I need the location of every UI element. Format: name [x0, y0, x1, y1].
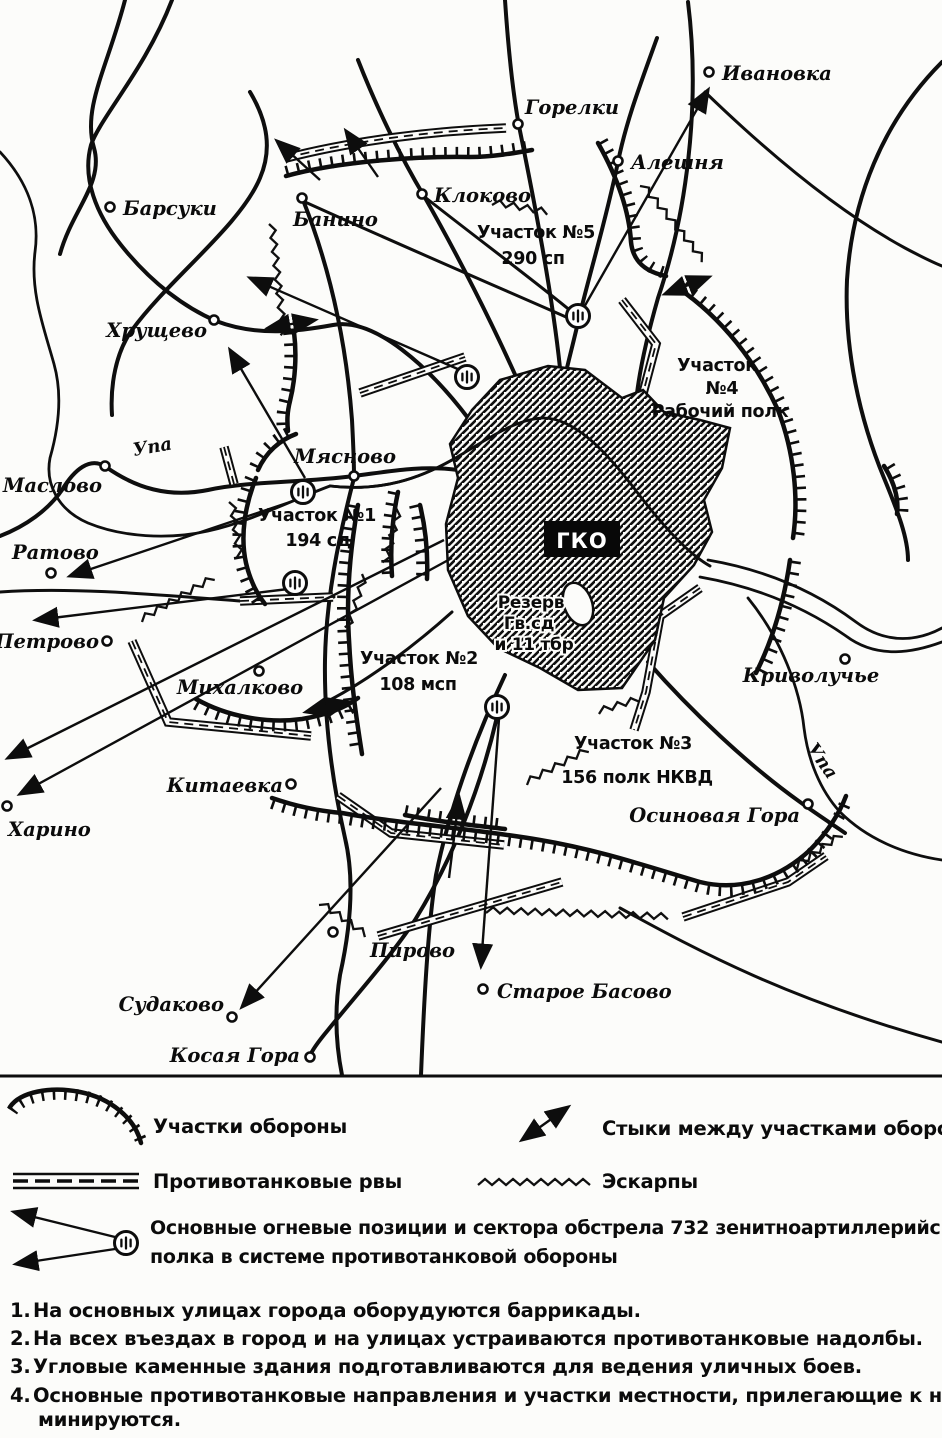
place-label-aleshnya: Алешня	[629, 151, 724, 174]
place-label-barsuki: Барсуки	[122, 197, 217, 220]
settlement-dot	[614, 157, 623, 166]
note3-text: Угловые каменные здания подготавливаются…	[33, 1355, 862, 1378]
note1-number: 1.	[10, 1299, 31, 1322]
sector4-label-line2: №4	[706, 379, 739, 399]
place-label-gorelki: Горелки	[524, 96, 619, 119]
place-label-khrushchevo: Хрущево	[104, 319, 207, 342]
place-label-mikhalkovo: Михалково	[176, 676, 303, 699]
note4-number: 4.	[10, 1384, 31, 1407]
place-label-sudakovo: Судаково	[119, 993, 224, 1016]
note3-number: 3.	[10, 1355, 31, 1378]
sector2-label-line1: Участок №2	[360, 649, 478, 669]
reserve-label-line3: и 11 тбр	[495, 635, 574, 655]
place-label-maslovo: Маслово	[2, 474, 102, 497]
legend-aa-label-line2: полка в системе противотанковой обороны	[150, 1246, 618, 1268]
sector5-label-line1: Участок №5	[477, 223, 595, 243]
antitank-ditch-symbol	[13, 1174, 139, 1188]
sector3-label-line1: Участок №3	[574, 734, 692, 754]
defense-map-svg: ГКО Резерв Гв.сд и 11 тбр	[0, 0, 942, 1438]
place-label-kosaya-gora: Косая Гора	[169, 1044, 300, 1067]
settlement-dot	[101, 462, 110, 471]
settlement-dot	[228, 1013, 237, 1022]
note1-text: На основных улицах города оборудуются ба…	[33, 1299, 641, 1322]
note4-text-line2: минируются.	[38, 1408, 181, 1431]
legend-escarpments-label: Эскарпы	[602, 1170, 698, 1193]
place-label-osinovaya-gora: Осиновая Гора	[629, 804, 800, 827]
settlement-dot	[255, 667, 264, 676]
defense-sector-symbol	[10, 1090, 143, 1147]
place-label-petrovo: Петрово	[0, 630, 99, 653]
notes: 1. На основных улицах города оборудуются…	[10, 1299, 942, 1431]
sector3-label-line2: 156 полк НКВД	[561, 768, 713, 788]
legend: Участки обороны Стыки между участками об…	[0, 1076, 942, 1268]
aa-position-icon	[567, 305, 590, 328]
sector4-label-line1: Участок	[677, 356, 757, 376]
settlement-dot	[705, 68, 714, 77]
sector4-label-line3: Рабочий полк	[652, 402, 789, 422]
settlement-dot	[287, 780, 296, 789]
place-label-staroe-basovo: Старое Басово	[497, 980, 672, 1003]
aa-position-icon	[486, 696, 509, 719]
place-label-banino: Банино	[292, 208, 378, 231]
place-label-kharino: Харино	[6, 818, 91, 841]
sector1-label-line2: 194 сд	[285, 531, 350, 551]
sector2-label-line2: 108 мсп	[379, 675, 456, 695]
reserve-label-line1: Резерв	[498, 593, 565, 613]
legend-aa-label-line1: Основные огневые позиции и сектора обстр…	[150, 1217, 942, 1239]
tula-defense-map-page: ГКО Резерв Гв.сд и 11 тбр	[0, 0, 942, 1438]
aa-position-legend-symbol	[14, 1212, 138, 1264]
reserve-label-line2: Гв.сд	[504, 614, 554, 634]
junction-arrow-symbol	[522, 1107, 568, 1140]
legend-junctions-label: Стыки между участками обороны	[602, 1117, 942, 1140]
settlement-dot	[418, 190, 427, 199]
place-label-krivoluchye: Криволучье	[742, 664, 880, 687]
place-label-klokovo: Клоково	[433, 184, 531, 207]
aa-position-icon	[456, 366, 479, 389]
place-label-ivanovka: Ивановка	[721, 62, 832, 85]
gko-label: ГКО	[556, 529, 607, 553]
settlement-dot	[306, 1053, 315, 1062]
aa-position-icon	[292, 481, 315, 504]
settlement-dot	[329, 928, 338, 937]
settlement-dot	[106, 203, 115, 212]
settlement-dot	[298, 194, 307, 203]
settlement-dot	[804, 800, 813, 809]
settlement-dot	[841, 655, 850, 664]
settlement-dot	[514, 120, 523, 129]
settlement-dot	[479, 985, 488, 994]
sector5-label-line2: 290 сп	[501, 249, 564, 269]
settlement-dot	[210, 316, 219, 325]
settlement-dot	[350, 472, 359, 481]
settlement-dot	[103, 637, 112, 646]
river-label-upa-west: Упа	[131, 433, 173, 461]
settlement-dot	[3, 802, 12, 811]
legend-ditches-label: Противотанковые рвы	[153, 1170, 402, 1193]
aa-position-icon	[284, 572, 307, 595]
settlement-dot	[47, 569, 56, 578]
legend-defense-sectors-label: Участки обороны	[153, 1115, 347, 1138]
escarpment-symbol	[478, 1179, 590, 1185]
place-label-myasnovo: Мясново	[293, 445, 396, 468]
place-label-kitaevka: Китаевка	[166, 774, 283, 797]
sector1-label-line1: Участок №1	[258, 506, 376, 526]
note2-number: 2.	[10, 1327, 31, 1350]
place-label-pirovo: Пирово	[369, 939, 455, 962]
place-label-ratovo: Ратово	[11, 541, 99, 564]
note2-text: На всех въездах в город и на улицах устр…	[33, 1327, 923, 1350]
note4-text: Основные противотанковые направления и у…	[33, 1384, 942, 1407]
